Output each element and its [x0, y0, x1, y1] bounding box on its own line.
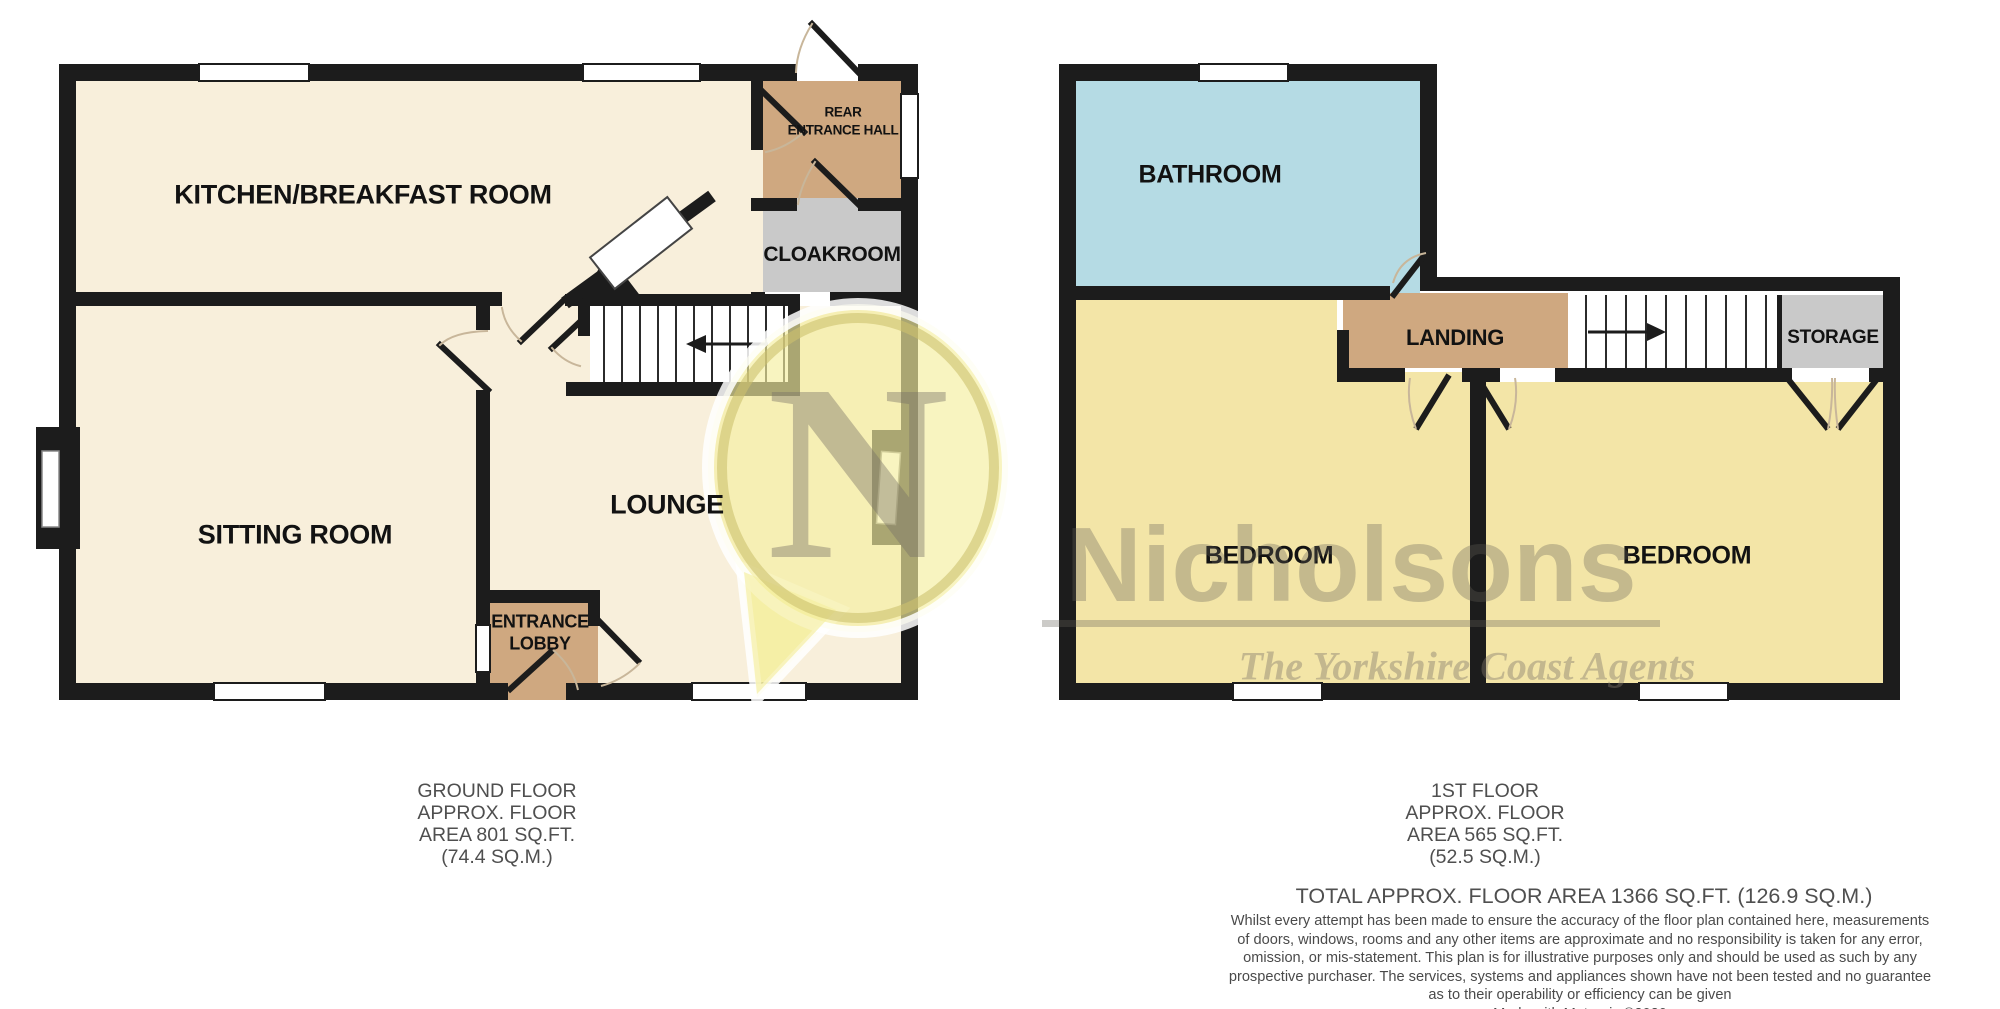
landing-left-stub — [1337, 330, 1349, 372]
window-rear-hall-right — [901, 94, 918, 178]
window-lobby-left — [476, 625, 490, 672]
disclaimer-line: Whilst every attempt has been made to en… — [1115, 912, 2000, 931]
first-floor-caption: 1ST FLOOR APPROX. FLOOR AREA 565 SQ.FT. … — [1285, 780, 1685, 868]
wall-top — [59, 64, 918, 81]
bathroom-label: BATHROOM — [1139, 161, 1282, 190]
strip-bottom-wall-1 — [1337, 368, 1405, 382]
rear-hall-door-gap — [797, 198, 858, 211]
caption-line: (52.5 SQ.M.) — [1285, 846, 1685, 868]
watermark-brand: Nicholsons — [1042, 512, 1660, 627]
total-area-text: TOTAL APPROX. FLOOR AREA 1366 SQ.FT. (12… — [1296, 884, 1873, 909]
disclaimer-line: omission, or mis-statement. This plan is… — [1115, 949, 2000, 968]
ff-wall-right — [1883, 277, 1900, 700]
caption-line: AREA 565 SQ.FT. — [1285, 824, 1685, 846]
window-lounge-bottom — [692, 683, 806, 700]
lounge-label: LOUNGE — [610, 490, 724, 521]
ff-strip-top-wall — [1420, 277, 1900, 291]
caption-line: GROUND FLOOR — [297, 780, 697, 802]
bay-left-glass — [42, 451, 59, 527]
bathroom-bottom-wall — [1059, 286, 1390, 300]
pin-monogram: N — [767, 332, 949, 612]
disclaimer-text: Whilst every attempt has been made to en… — [1115, 912, 2000, 1009]
floorplan-page: N KITCHEN/BREAKFAST ROOM SITTING ROOM LO… — [0, 0, 2000, 1009]
kitchen-divider-wall — [59, 292, 502, 306]
sitting-room-label: SITTING ROOM — [198, 520, 392, 551]
stairs-storage-divider — [1777, 295, 1782, 368]
landing-label: LANDING — [1406, 325, 1504, 351]
disclaimer-line: as to their operability or efficiency ca… — [1115, 986, 2000, 1005]
window-kitchen-top-right — [583, 64, 700, 81]
window-kitchen-top-left — [199, 64, 309, 81]
caption-line: AREA 801 SQ.FT. — [297, 824, 697, 846]
window-sitting-bottom — [214, 683, 325, 700]
kitchen-label: KITCHEN/BREAKFAST ROOM — [174, 180, 551, 211]
rear-hall-label-line1: REAR — [824, 105, 861, 120]
lobby-top-wall — [483, 590, 600, 603]
sitting-bay-window — [36, 427, 80, 549]
caption-line: (74.4 SQ.M.) — [297, 846, 697, 868]
cloakroom-label: CLOAKROOM — [763, 243, 900, 267]
caption-line: APPROX. FLOOR — [297, 802, 697, 824]
bathroom-right-wall — [1420, 81, 1437, 277]
watermark-tagline: The Yorkshire Coast Agents — [1239, 643, 1696, 690]
lobby-label-line2: LOBBY — [509, 634, 571, 655]
room-divider-upper — [476, 306, 490, 330]
disclaimer-line: of doors, windows, rooms and any other i… — [1115, 931, 2000, 950]
disclaimer-line: prospective purchaser. The services, sys… — [1115, 968, 2000, 987]
window-bathroom-top — [1199, 64, 1288, 81]
metropix-credit: Made with Metropix ©2020 — [1115, 1005, 2000, 1009]
wall-left — [59, 64, 76, 700]
lobby-label-line1: ENTRANCE — [491, 612, 589, 633]
strip-bottom-wall-3 — [1555, 368, 1792, 382]
rear-hall-label-line2: ENTRANCE HALL — [788, 123, 899, 138]
storage-label: STORAGE — [1787, 327, 1879, 349]
caption-line: 1ST FLOOR — [1285, 780, 1685, 802]
caption-line: APPROX. FLOOR — [1285, 802, 1685, 824]
ground-floor-caption: GROUND FLOOR APPROX. FLOOR AREA 801 SQ.F… — [297, 780, 697, 868]
